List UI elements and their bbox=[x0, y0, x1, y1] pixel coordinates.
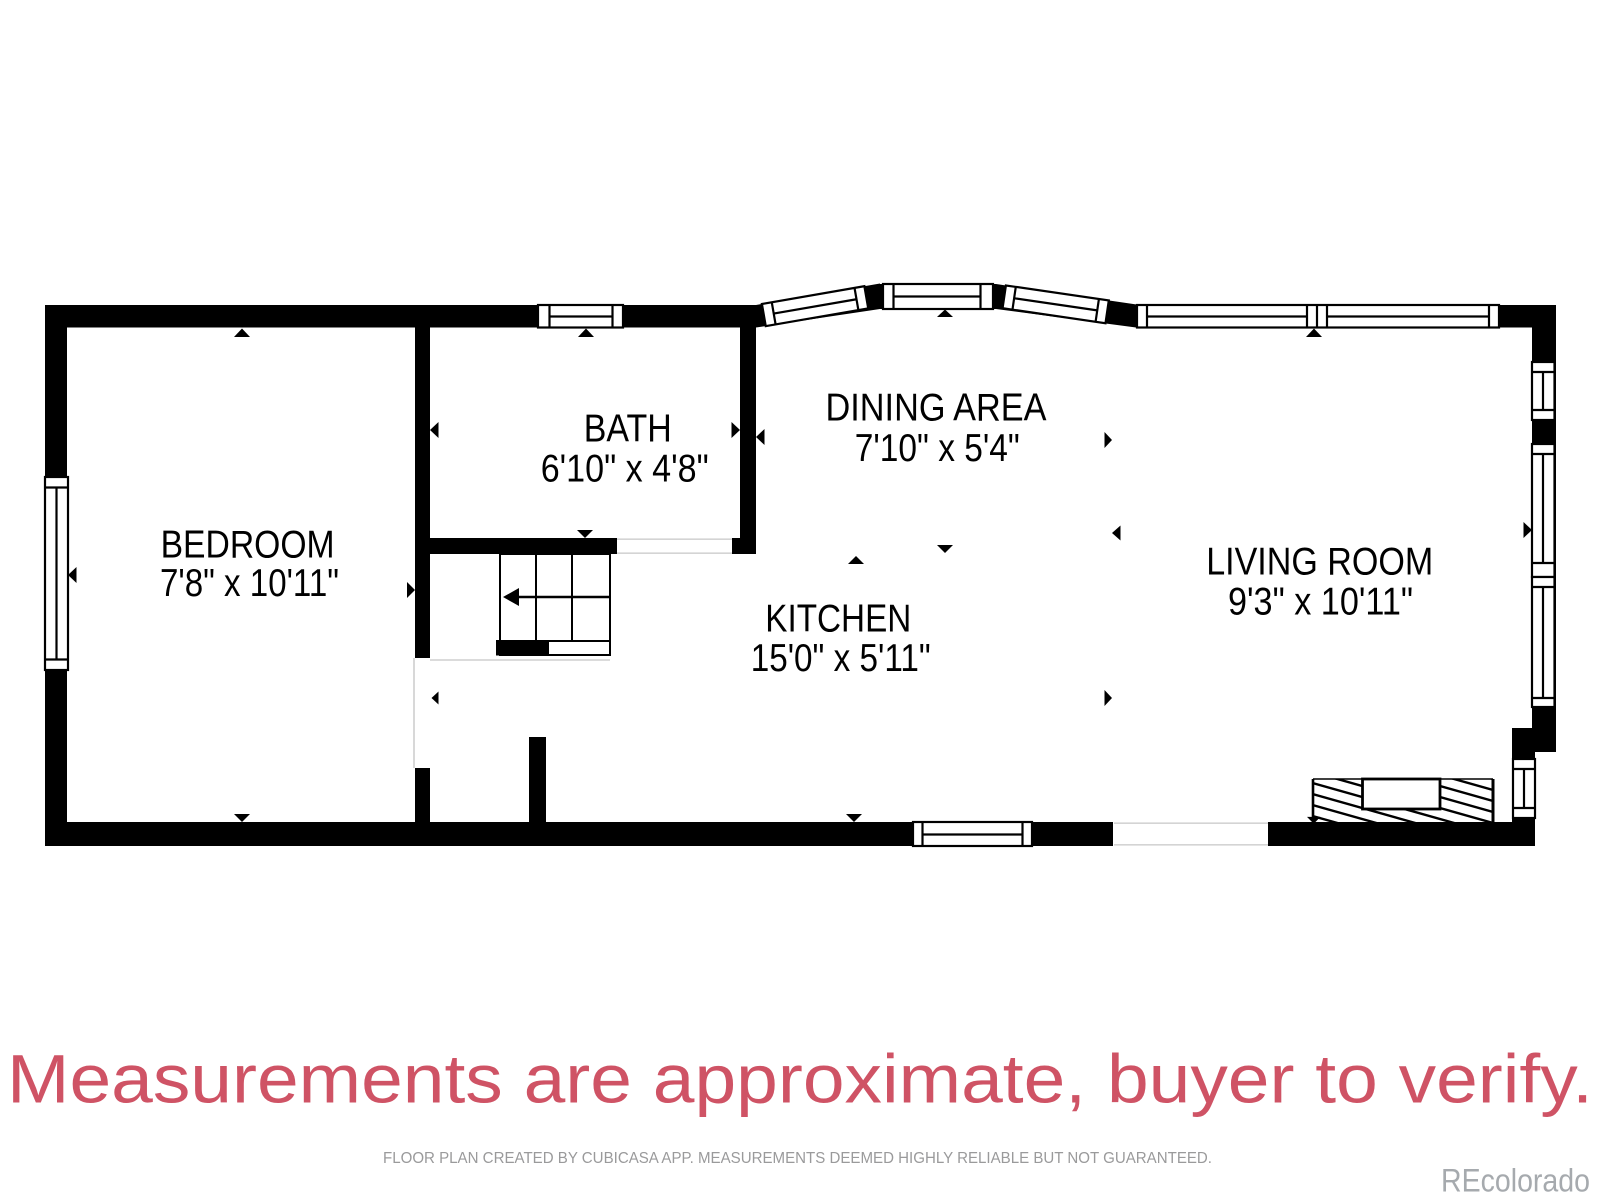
svg-text:7'10" x 5'4": 7'10" x 5'4" bbox=[855, 427, 1020, 470]
svg-text:BEDROOM: BEDROOM bbox=[161, 524, 335, 567]
svg-text:FLOOR PLAN CREATED BY CUBICASA: FLOOR PLAN CREATED BY CUBICASA APP. MEAS… bbox=[383, 1150, 1212, 1167]
svg-text:LIVING ROOM: LIVING ROOM bbox=[1206, 541, 1433, 584]
svg-text:9'3" x 10'11": 9'3" x 10'11" bbox=[1228, 581, 1413, 624]
svg-text:DINING AREA: DINING AREA bbox=[826, 386, 1047, 429]
svg-text:Measurements are approximate,: Measurements are approximate, buyer to v… bbox=[7, 1041, 1593, 1118]
svg-text:7'8" x 10'11": 7'8" x 10'11" bbox=[160, 562, 339, 605]
svg-text:6'10" x 4'8": 6'10" x 4'8" bbox=[541, 447, 709, 490]
svg-text:BATH: BATH bbox=[584, 407, 672, 450]
svg-text:15'0" x 5'11": 15'0" x 5'11" bbox=[751, 637, 931, 680]
svg-text:KITCHEN: KITCHEN bbox=[765, 597, 911, 640]
svg-text:REcolorado: REcolorado bbox=[1441, 1162, 1590, 1198]
